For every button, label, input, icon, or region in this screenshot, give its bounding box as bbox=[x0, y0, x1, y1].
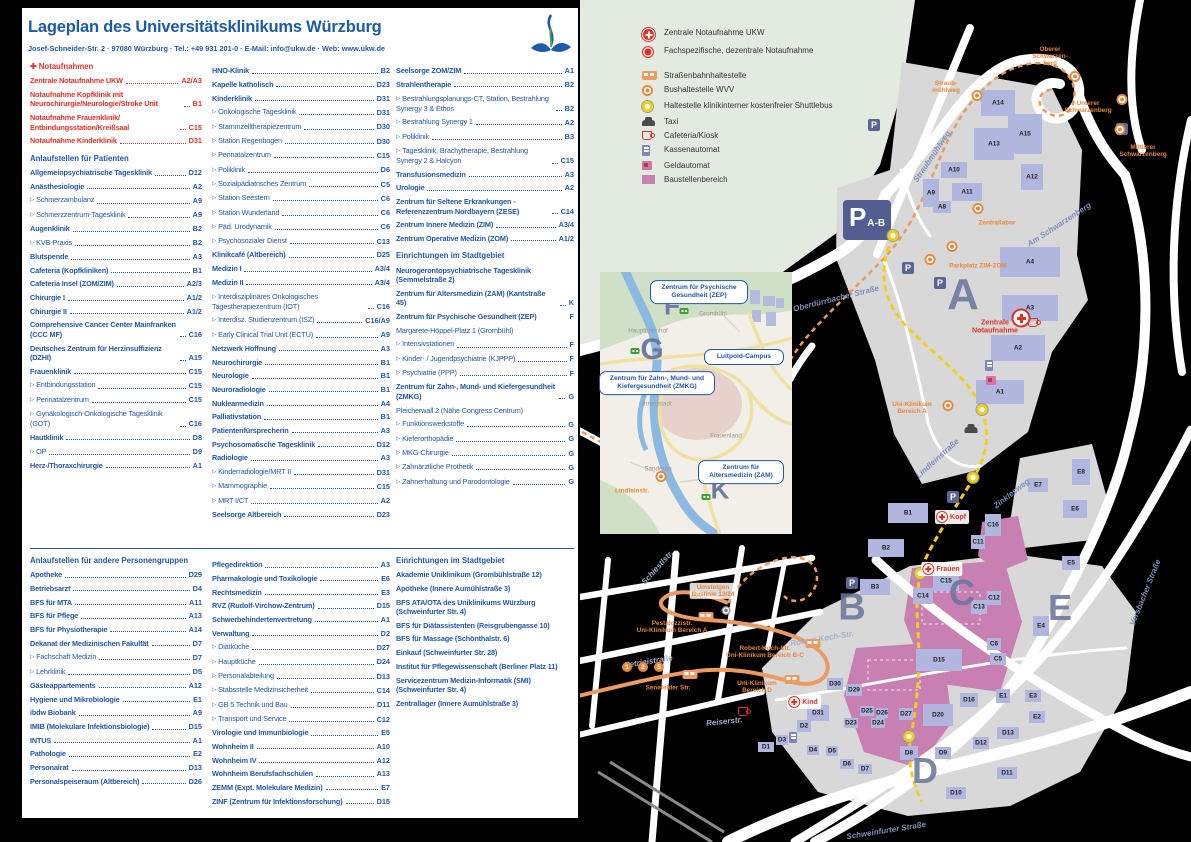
entry-label: ▷GB 5 Technik und Bau bbox=[212, 700, 288, 710]
bus-stop-label: Parkplatz ZIM-ZOM bbox=[949, 262, 1007, 269]
cafeteria-icon bbox=[642, 131, 652, 140]
dot-leader bbox=[432, 139, 562, 140]
directory-entry: Allgemeinpsychiatrische TagesklinikD12 bbox=[30, 168, 202, 177]
entry-label: Personalrat bbox=[30, 763, 69, 772]
directory-entry: ▷Tagesklinik, Brachytherapie, Bestrahlun… bbox=[396, 146, 574, 166]
sub-item-icon: ▷ bbox=[212, 673, 216, 679]
entry-label: Pleicherwall 2 (Nähe Congress Centrum) bbox=[396, 406, 523, 415]
directory-entry: RadiologieA3 bbox=[212, 453, 390, 462]
entry-label: ▷Bestrahlung Synergy 1 bbox=[396, 117, 473, 127]
city-site-callout: Zentrum für Psychische Gesundheit (ZEP) bbox=[650, 280, 748, 304]
bus-stop-icon bbox=[972, 90, 983, 101]
directory-entry: BFS für PflegeA13 bbox=[30, 611, 202, 620]
directory-entry: ZINF (Zentrum für Infektionsforschung)D1… bbox=[212, 797, 390, 806]
entry-label: ▷Psychosozialer Dienst bbox=[212, 236, 287, 246]
grid-reference: D27 bbox=[377, 643, 390, 652]
legend-icon-cell bbox=[642, 161, 664, 170]
entry-label: Deutsches Zentrum für Herzinsuffizienz (… bbox=[30, 344, 177, 363]
grid-reference: A1 bbox=[381, 615, 390, 624]
building-label: D24 bbox=[872, 720, 884, 727]
directory-entry: ▷Fachschaft MedizinD7 bbox=[30, 652, 202, 662]
campus-area-letter: C bbox=[949, 572, 975, 614]
legend-icon-cell bbox=[642, 131, 664, 140]
directory-section: Anlaufstellen für PatientenAllgemeinpsyc… bbox=[30, 154, 202, 471]
grid-reference: C5 bbox=[381, 180, 390, 189]
directory-entry: ▷PoliklinikB3 bbox=[396, 132, 574, 142]
building-label: D16 bbox=[963, 697, 975, 704]
building-label: D5 bbox=[828, 748, 836, 755]
directory-entry: Seelsorge AltbereichD23 bbox=[212, 510, 390, 519]
entry-label: ▷Schmerzzentrum-Tagesklinik bbox=[30, 210, 125, 220]
building-label: B3 bbox=[871, 584, 879, 591]
directory-entry: ▷Transport und ServiceC12 bbox=[212, 714, 390, 724]
legend-icon-cell bbox=[642, 71, 664, 80]
directory-entry: Wohnheim BerufsfachschulenA13 bbox=[212, 769, 390, 778]
building-label: D27 bbox=[900, 711, 912, 718]
grid-reference: A15 bbox=[189, 353, 202, 362]
sub-item-icon: ▷ bbox=[396, 370, 400, 376]
grid-reference: A12 bbox=[377, 756, 390, 765]
building-label: D20 bbox=[932, 712, 944, 719]
entry-label: Seelsorge ZOM/ZIM bbox=[396, 66, 461, 75]
grid-reference: D30 bbox=[377, 137, 390, 146]
entry-label: BFS für Massage (Schönthalstr. 6) bbox=[396, 634, 509, 643]
tram-stop-icon bbox=[806, 635, 821, 653]
directory-entry: AugenklinikB2 bbox=[30, 224, 202, 233]
grid-reference: D15 bbox=[189, 722, 202, 731]
grid-reference: A1/2 bbox=[187, 293, 202, 302]
grid-reference: A9 bbox=[193, 210, 202, 219]
grid-reference: E3 bbox=[381, 588, 390, 597]
bus-stop-icon bbox=[1115, 124, 1126, 135]
dot-leader bbox=[464, 73, 562, 74]
kassenautomat-icon bbox=[789, 732, 797, 743]
directory-column: Seelsorge ZOM/ZIMA1StrahlentherapieB2▷Be… bbox=[396, 62, 574, 495]
dot-leader bbox=[252, 378, 378, 379]
entry-label: Medizin II bbox=[212, 278, 243, 287]
grid-reference: C14 bbox=[561, 207, 574, 216]
tram-stop-icon bbox=[683, 666, 698, 684]
parking-zone-label: A-B bbox=[867, 218, 885, 229]
legend-item: Taxi bbox=[642, 117, 892, 126]
dot-leader bbox=[559, 398, 565, 399]
entry-label: ▷Psychiatrie (PPP) bbox=[396, 368, 457, 378]
dot-leader bbox=[99, 687, 186, 688]
directory-entry: Netzwerk HoffnungA3 bbox=[212, 344, 390, 353]
sub-item-icon: ▷ bbox=[30, 212, 34, 218]
dot-leader bbox=[316, 776, 374, 777]
building-label: A9 bbox=[927, 190, 935, 197]
entry-label: Gästeappartements bbox=[30, 681, 96, 690]
directory-entry: BetriebsarztD4 bbox=[30, 584, 202, 593]
grid-reference: B1 bbox=[381, 371, 390, 380]
city-site-callout: Luitpold-Campus bbox=[704, 349, 784, 365]
grid-reference: B3 bbox=[565, 132, 574, 141]
building-label: D1 bbox=[762, 744, 770, 751]
grid-reference: D25 bbox=[377, 250, 390, 259]
directory-entry: ▷KieferorthopädieG bbox=[396, 434, 574, 444]
directory-entry: NeurochirurgieB1 bbox=[212, 358, 390, 367]
grid-reference: B1 bbox=[381, 358, 390, 367]
entry-label: Urologie bbox=[396, 183, 424, 192]
bus-stop-label: Straub- mühlweg bbox=[932, 80, 960, 94]
directory-entry: ▷DiätkücheD27 bbox=[212, 642, 390, 652]
directory-entry: ZEMM (Expt. Molekulare Medizin)E7 bbox=[212, 783, 390, 792]
entry-label: ▷Schmerzambulanz bbox=[30, 195, 94, 205]
directory-entry: HNO-KlinikB2 bbox=[212, 66, 390, 75]
sub-item-icon: ▷ bbox=[212, 109, 216, 115]
entry-label: ZINF (Zentrum für Infektionsforschung) bbox=[212, 797, 343, 806]
grid-reference: D6 bbox=[381, 165, 390, 174]
tram-stop-label: Senefelder Str. bbox=[646, 684, 691, 691]
legend-label: Bushaltestelle WVV bbox=[664, 85, 892, 94]
dot-leader bbox=[291, 707, 374, 708]
sub-item-icon: ▷ bbox=[212, 238, 216, 244]
grid-reference: B2 bbox=[381, 66, 390, 75]
directory-entry: Chirurgie IIA1/2 bbox=[30, 307, 202, 316]
grid-reference: B2 bbox=[193, 238, 202, 247]
legend-item: Straßenbahnhaltestelle bbox=[642, 71, 892, 80]
directory-entry: Cafeteria Insel (ZOM/ZIM)A2/3 bbox=[30, 279, 202, 288]
grid-reference: B1 bbox=[193, 99, 202, 108]
directory-entry: Hygiene und MikrobiologieE1 bbox=[30, 695, 202, 704]
shuttle-stop-icon bbox=[888, 230, 899, 241]
directory-entry: Pleicherwall 2 (Nähe Congress Centrum) bbox=[396, 406, 574, 415]
directory-entry: ▷Sozialpädiatrisches ZentrumC5 bbox=[212, 179, 390, 189]
entry-label: Notaufnahme Kinderklinik bbox=[30, 136, 117, 145]
dot-leader bbox=[311, 692, 374, 693]
grid-reference: F bbox=[570, 312, 574, 321]
entry-label: ▷Transport und Service bbox=[212, 714, 286, 724]
building-label: A11 bbox=[961, 189, 972, 196]
entry-label: BFS für Physiotherapie bbox=[30, 625, 107, 634]
entry-label: Klinikcafé (Altbereich) bbox=[212, 250, 286, 259]
grid-reference: C15 bbox=[189, 123, 202, 132]
grid-reference: C15 bbox=[189, 395, 202, 404]
grid-reference: A2 bbox=[193, 182, 202, 191]
directory-entry: Notaufnahme KinderklinikD31 bbox=[30, 136, 202, 145]
entry-label: ▷Zahnerhaltung und Parodontologie bbox=[396, 477, 510, 487]
entry-label: Psychosomatische Tagesklinik bbox=[212, 440, 315, 449]
directory-column: Einrichtungen im StadtgebietAkademie Uni… bbox=[396, 556, 574, 716]
entry-label: Zentrum Innere Medizin (ZIM) bbox=[396, 220, 493, 229]
directory-column: HNO-KlinikB2Kapelle katholischD23Kinderk… bbox=[212, 62, 390, 527]
shuttle-stop-icon bbox=[977, 404, 988, 415]
entry-label: ibdw Biobank bbox=[30, 708, 76, 717]
entry-label: Verwaltung bbox=[212, 629, 249, 638]
section-heading: Einrichtungen im Stadtgebiet bbox=[396, 251, 574, 261]
entry-label: ▷Funktionswerkstoffe bbox=[396, 419, 464, 429]
dot-leader bbox=[65, 577, 186, 578]
section-divider bbox=[30, 548, 574, 549]
directory-entry: ▷PersonalabteilungD13 bbox=[212, 671, 390, 681]
dot-leader bbox=[368, 308, 374, 309]
dot-leader bbox=[518, 361, 566, 362]
dot-leader bbox=[87, 188, 190, 189]
grid-reference: D7 bbox=[193, 639, 202, 648]
directory-entry: ▷LehrklinikD5 bbox=[30, 667, 202, 677]
grid-reference: G bbox=[568, 463, 574, 472]
baustelle-icon bbox=[642, 175, 655, 184]
section-heading: ✚ Notaufnahmen bbox=[30, 62, 202, 72]
grid-reference: A9 bbox=[193, 196, 202, 205]
building-label: D25 bbox=[861, 708, 873, 715]
entry-label: ▷Interdisziplinäres Onkologisches Tagest… bbox=[212, 292, 365, 312]
grid-reference: E5 bbox=[381, 728, 390, 737]
entry-label: Strahlentherapie bbox=[396, 80, 451, 89]
district-label: Innenstadt bbox=[642, 401, 671, 408]
geldautomat-icon bbox=[986, 372, 996, 390]
shuttle-stop-icon bbox=[904, 731, 915, 742]
building-label: C14 bbox=[917, 593, 929, 600]
sub-item-icon: ▷ bbox=[212, 181, 216, 187]
directory-entry: Zentrum für Altersmedizin (ZAM) (Kantstr… bbox=[396, 289, 574, 308]
dot-leader bbox=[71, 259, 189, 260]
directory-column: PflegedirektionA3Pharmakologie und Toxik… bbox=[212, 556, 390, 814]
directory-entry: ▷Station RegenbogenD30 bbox=[212, 136, 390, 146]
taxi-icon bbox=[642, 120, 655, 126]
building-label: D15 bbox=[933, 657, 945, 664]
tram-icon bbox=[806, 639, 821, 648]
directory-entry: ▷Schmerzzentrum-TagesklinikA9 bbox=[30, 210, 202, 220]
entry-label: Pathologie bbox=[30, 749, 66, 758]
dot-leader bbox=[457, 347, 566, 348]
building-label: D29 bbox=[848, 687, 860, 694]
dot-leader bbox=[282, 215, 377, 216]
directory-entry: Akademie Uniklinikum (Grombühlstraße 12) bbox=[396, 570, 574, 579]
bus-stop-label: Zentrallabor bbox=[979, 219, 1016, 226]
directory-entry: ▷Bestrahlung Synergy 1A2 bbox=[396, 117, 574, 127]
directory-entry: HautklinikD8 bbox=[30, 433, 202, 442]
dot-leader bbox=[128, 217, 189, 218]
grid-reference: D24 bbox=[377, 657, 390, 666]
dot-leader bbox=[117, 286, 184, 287]
building-label: D31 bbox=[812, 710, 824, 717]
entry-label: Frauenklinik bbox=[30, 367, 71, 376]
sub-item-icon: ▷ bbox=[212, 716, 216, 722]
sub-item-icon: ▷ bbox=[30, 397, 34, 403]
bus-stop-label: Oberer Schwarzen- berg bbox=[1032, 46, 1068, 68]
grid-reference: G bbox=[568, 420, 574, 429]
entry-label: Wohnheim II bbox=[212, 742, 254, 751]
entry-label: ▷Poliklinik bbox=[212, 165, 245, 175]
directory-entry: ▷KVB-PraxisB2 bbox=[30, 238, 202, 248]
directory-entry: Notaufnahme Kopfklinik mit Neurochirurgi… bbox=[30, 90, 202, 109]
directory-entry: Medizin IA3/4 bbox=[212, 264, 390, 273]
dot-leader bbox=[299, 114, 373, 115]
dot-leader bbox=[275, 229, 378, 230]
grid-reference: E1 bbox=[193, 695, 202, 704]
inset-tram-icon bbox=[702, 494, 711, 500]
grid-reference: C16 bbox=[189, 330, 202, 339]
entry-label: Zentrum Operative Medizin (ZOM) bbox=[396, 234, 508, 243]
building-label: A12 bbox=[1026, 174, 1038, 181]
grid-reference: B2 bbox=[193, 224, 202, 233]
shuttle-stop-icon bbox=[977, 402, 988, 420]
sub-item-icon: ▷ bbox=[396, 421, 400, 427]
entry-label: Einkauf (Schweinfurter Str. 28) bbox=[396, 648, 497, 657]
taxi-icon bbox=[965, 427, 978, 433]
entry-label: Netzwerk Hoffnung bbox=[212, 344, 276, 353]
entry-label: Apotheke (Innere Aumühlstraße 3) bbox=[396, 584, 510, 593]
directory-entry: ▷Psychosozialer DienstC13 bbox=[212, 236, 390, 246]
entry-label: Zentrallager (Innere Aumühlstraße 3) bbox=[396, 699, 518, 708]
grid-reference: D12 bbox=[189, 168, 202, 177]
entry-label: ▷MKG-Chirurgie bbox=[396, 448, 449, 458]
dot-leader bbox=[74, 373, 185, 374]
entry-label: HNO-Klinik bbox=[212, 66, 249, 75]
city-inset-map bbox=[600, 272, 792, 534]
entry-label: Kinderklinik bbox=[212, 94, 252, 103]
inset-tram-icon bbox=[680, 308, 689, 314]
entry-label: Servicezentrum Medizin-Informatik (SMI) … bbox=[396, 676, 574, 695]
dot-leader bbox=[75, 604, 186, 605]
city-site-callout: Zentrum für Zahn-, Mund- und Kiefergesun… bbox=[599, 371, 715, 395]
building-label: D12 bbox=[975, 740, 987, 747]
entry-label: ▷Interdisz. Studienzentrum (ISZ) bbox=[212, 315, 314, 325]
directory-entry: PathologieE2 bbox=[30, 749, 202, 758]
sub-item-icon: ▷ bbox=[212, 469, 216, 475]
ukw-logo bbox=[527, 12, 573, 65]
building-label: D11 bbox=[1001, 770, 1012, 777]
sub-item-icon: ▷ bbox=[212, 332, 216, 338]
sub-item-icon: ▷ bbox=[30, 411, 34, 417]
building-label: C16 bbox=[987, 522, 999, 529]
bus-stop-label: Mittlerer Schwarzenberg bbox=[1119, 144, 1166, 158]
directory-section: PflegedirektionA3Pharmakologie und Toxik… bbox=[212, 560, 390, 806]
sub-item-icon: ▷ bbox=[212, 659, 216, 665]
dot-leader bbox=[264, 419, 378, 420]
dot-leader bbox=[265, 364, 377, 365]
dot-leader bbox=[290, 243, 374, 244]
directory-entry: ▷HauptkücheD24 bbox=[212, 657, 390, 667]
grid-reference: D26 bbox=[189, 777, 202, 786]
shuttle-stop-icon bbox=[642, 101, 653, 112]
bus-stop-icon bbox=[973, 201, 984, 219]
grid-reference: B2 bbox=[565, 80, 574, 89]
bus-stop-icon bbox=[925, 252, 936, 270]
dot-leader bbox=[111, 272, 189, 273]
grid-reference: F bbox=[570, 369, 574, 378]
directory-entry: ▷Kinder- / Jugendpsychiatrie (KJPPP)F bbox=[396, 354, 574, 364]
entry-label: Zentrum für Altersmedizin (ZAM) (Kantstr… bbox=[396, 289, 557, 308]
directory-entry: Cafeteria (Kopfkliniken)B1 bbox=[30, 266, 202, 275]
legend-icon-cell bbox=[642, 145, 664, 156]
dot-leader bbox=[180, 129, 186, 130]
grid-reference: C15 bbox=[561, 156, 574, 165]
dot-leader bbox=[265, 594, 379, 595]
dot-leader bbox=[284, 516, 373, 517]
directory-entry: Deutsches Zentrum für Herzinsuffizienz (… bbox=[30, 344, 202, 363]
entry-label: ▷KVB-Praxis bbox=[30, 238, 72, 248]
grid-reference: B2 bbox=[565, 104, 574, 113]
campus-area-letter: B bbox=[838, 587, 865, 630]
directory-entry: BFS für Massage (Schönthalstr. 6) bbox=[396, 634, 574, 643]
directory-entry: BlutspendeA3 bbox=[30, 252, 202, 261]
directory-entry: Klinikcafé (Altbereich)D25 bbox=[212, 250, 390, 259]
entry-label: Neurochirurgie bbox=[212, 358, 262, 367]
emergency-spot-label: Frauen bbox=[921, 562, 962, 576]
grid-reference: A1 bbox=[565, 66, 574, 75]
directory-entry: Zentrum für Zahn-, Mund- und Kiefergesun… bbox=[396, 382, 574, 401]
bus-stop-icon bbox=[925, 254, 936, 265]
dot-leader bbox=[123, 701, 191, 702]
page: { "header": { "title": "Lageplan des Uni… bbox=[0, 0, 1191, 842]
dot-leader bbox=[318, 446, 373, 447]
district-label: Frauenland bbox=[710, 433, 742, 440]
sub-item-icon: ▷ bbox=[212, 687, 216, 693]
entry-label: Neurologie bbox=[212, 371, 249, 380]
directory-entry: NeuroradiologieB1 bbox=[212, 385, 390, 394]
building-label: D13 bbox=[1002, 730, 1014, 737]
entry-label: ▷Zahnärztliche Prothetik bbox=[396, 462, 473, 472]
legend-label: Taxi bbox=[664, 117, 892, 126]
entry-label: Anästhesiologie bbox=[30, 182, 84, 191]
legend-label: Baustellenbereich bbox=[664, 175, 892, 184]
entry-label: Notaufnahme Frauenklinik/ Entbindungssta… bbox=[30, 113, 177, 132]
building-label: B1 bbox=[904, 510, 912, 517]
grid-reference: C6 bbox=[381, 208, 390, 217]
directory-entry: ▷Zahnärztliche ProthetikG bbox=[396, 462, 574, 472]
building-label: D3 bbox=[778, 737, 786, 744]
sub-item-icon: ▷ bbox=[30, 669, 34, 675]
section-heading: Einrichtungen im Stadtgebiet bbox=[396, 556, 574, 566]
directory-entry: Chirurgie IA1/2 bbox=[30, 293, 202, 302]
entry-label: ▷Lehrklinik bbox=[30, 667, 65, 677]
entry-label: Herz-/Thoraxchirurgie bbox=[30, 461, 103, 470]
emergency-cross-icon bbox=[936, 511, 948, 523]
grid-reference: A3 bbox=[193, 252, 202, 261]
directory-entry: Dekanat der Medizinischen FakultätD7 bbox=[30, 639, 202, 648]
building-label: E4 bbox=[1037, 623, 1045, 630]
legend-item: Fachspezifische, dezentrale Notaufnahme bbox=[642, 46, 892, 58]
grid-reference: D23 bbox=[377, 80, 390, 89]
entry-label: ▷Kinder- / Jugendpsychiatrie (KJPPP) bbox=[396, 354, 515, 364]
bus-stop-icon bbox=[656, 469, 667, 487]
directory-column: Anlaufstellen für andere Personengruppen… bbox=[30, 556, 202, 794]
bus-stop-icon bbox=[973, 203, 984, 214]
directory-entry: ▷Zahnerhaltung und ParodontologieG bbox=[396, 477, 574, 487]
grid-reference: D13 bbox=[377, 672, 390, 681]
grid-reference: D8 bbox=[193, 433, 202, 442]
sub-item-icon: ▷ bbox=[212, 498, 216, 504]
building-label: A1 bbox=[996, 389, 1004, 396]
tram-line-number: 1 bbox=[622, 662, 632, 672]
grid-reference: D7 bbox=[193, 653, 202, 662]
directory-section: Einrichtungen im StadtgebietNeurogeronto… bbox=[396, 251, 574, 486]
entry-label: Dekanat der Medizinischen Fakultät bbox=[30, 639, 149, 648]
legend-icon-cell bbox=[642, 46, 664, 58]
directory-section: HNO-KlinikB2Kapelle katholischD23Kinderk… bbox=[212, 66, 390, 519]
grid-reference: C6 bbox=[381, 194, 390, 203]
dot-leader bbox=[496, 227, 555, 228]
grid-reference: D4 bbox=[193, 584, 202, 593]
directory-section: Seelsorge ZOM/ZIMA1StrahlentherapieB2▷Be… bbox=[396, 66, 574, 243]
directory-entry: TransfusionsmedizinA3 bbox=[396, 170, 574, 179]
dot-leader bbox=[269, 391, 378, 392]
directory-entry: ▷PerinatalzentrumC15 bbox=[30, 395, 202, 405]
campus-area-letter: D bbox=[912, 750, 938, 792]
emergency-cross-icon bbox=[788, 696, 800, 708]
dot-leader bbox=[54, 742, 190, 743]
section-heading: Anlaufstellen für Patienten bbox=[30, 154, 202, 164]
city-site-callout: Zentrum für Altersmedizin (ZAM) bbox=[698, 460, 784, 484]
directory-entry: ▷Onkologische TagesklinikD31 bbox=[212, 107, 390, 117]
entry-label: Neuroradiologie bbox=[212, 385, 266, 394]
directory-entry: ▷Bestrahlungsplanungs-CT, Station, Bestr… bbox=[396, 94, 574, 114]
entry-label: Betriebsarzt bbox=[30, 584, 70, 593]
entry-label: Hautklinik bbox=[30, 433, 63, 442]
